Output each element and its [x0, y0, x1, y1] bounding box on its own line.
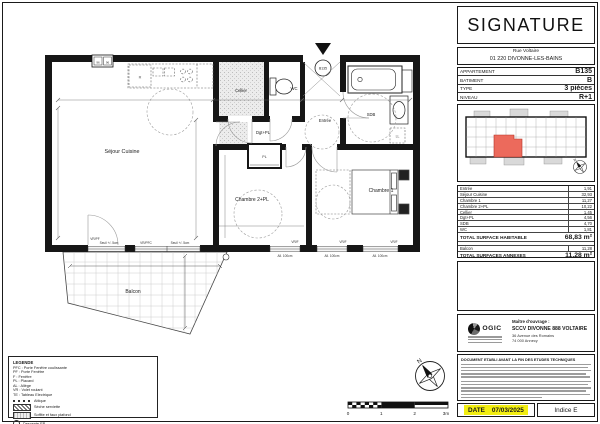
owner-box: OGIC Maître d'ouvrage : SCCV DIVONNE 888…	[457, 314, 595, 352]
room-label-chambre2: Chambre 2+PL	[235, 197, 269, 203]
info-row: BATIMENT B	[458, 76, 594, 84]
annex-total-label: TOTAL SURFACES ANNEXES	[460, 253, 526, 258]
info-value: B135	[575, 68, 592, 75]
descente-ep-symbol	[223, 254, 229, 260]
scale-3m: 3m	[443, 411, 450, 416]
surface-value: 11,28	[568, 246, 594, 251]
ogic-logo-block: OGIC	[462, 318, 508, 348]
disclaimer-text-line	[461, 387, 591, 388]
legend-box: LEGENDE PFC : Porte Fenêtre coulissante …	[8, 356, 158, 418]
svg-text:VR/F: VR/F	[339, 240, 346, 244]
info-value: R+1	[579, 94, 592, 101]
info-value: B	[587, 77, 592, 84]
legend-symbol-row: Descente EP	[13, 420, 153, 424]
washer: LL	[390, 128, 405, 143]
info-label: APPARTEMENT	[460, 69, 495, 74]
dimension-lines	[56, 98, 412, 240]
room-label-entree: Entrée	[319, 118, 332, 123]
svg-text:VR/F: VR/F	[390, 240, 397, 244]
duct-label-right: 96	[106, 61, 110, 65]
surface-label: Dgt+PL	[458, 215, 568, 220]
ogic-logo-text: OGIC	[482, 325, 501, 332]
annex-total-row: TOTAL SURFACES ANNEXES 11,28 m²	[458, 252, 594, 258]
svg-text:VR/PF: VR/PF	[90, 237, 99, 241]
disclaimer-title: DOCUMENT ETABLI AVANT LA FIN DES ETUDES …	[461, 358, 591, 362]
logo-box: SIGNATURE	[457, 6, 595, 44]
apartment-info-table: APPARTEMENT B135 BATIMENT B TYPE 3 pièce…	[457, 67, 595, 101]
date-highlight: DATE 07/03/2025	[464, 405, 528, 415]
disclaimer-text-line	[461, 384, 588, 385]
surface-label: Chambre 1	[458, 198, 568, 203]
svg-text:All. 100cm: All. 100cm	[278, 254, 293, 258]
surface-value: 4,56	[568, 215, 594, 220]
disclaimer-text-line	[461, 373, 586, 374]
attique-symbol-icon	[13, 400, 31, 402]
indice-cell: Indice E	[537, 403, 595, 417]
placard-label: PL	[262, 155, 266, 159]
svg-text:All. 100cm: All. 100cm	[325, 254, 340, 258]
surface-label: Chambre 2+PL	[458, 204, 568, 209]
owner-address-line: 74 000 Annecy	[512, 338, 590, 343]
ogic-fineprint-line	[468, 339, 502, 340]
entry-marker: B135	[303, 43, 340, 96]
legend-symbol-label: Sèche serviette	[34, 405, 60, 409]
ogic-fineprint-line	[468, 342, 502, 343]
room-label-chambre1: Chambre 1	[369, 188, 394, 194]
info-label: TYPE	[460, 86, 472, 91]
annex-total-value: 11,28 m²	[565, 252, 592, 258]
surface-value: 32,93	[568, 192, 594, 197]
plan-sheet: Balcon	[0, 0, 600, 424]
info-row: TYPE 3 pièces	[458, 85, 594, 93]
surface-value: 1,91	[568, 186, 594, 191]
surface-value: 4,70	[568, 221, 594, 226]
disclaimer-text-line	[461, 370, 591, 371]
north-compass-icon: N	[408, 352, 449, 394]
surface-label: Entrée	[458, 186, 568, 191]
address-city: 01 220 DIVONNE-LES-BAINS	[490, 56, 563, 63]
bedroom1-furniture	[316, 170, 409, 214]
legend-title: LEGENDE	[13, 360, 153, 365]
legend-symbol-label: Attique	[34, 399, 46, 403]
svg-text:Seuil +/- 5cm: Seuil +/- 5cm	[100, 241, 119, 245]
title-block: SIGNATURE Rue Voltaire 01 220 DIVONNE-LE…	[457, 6, 595, 417]
downspout-symbol-icon	[13, 420, 20, 424]
scale-2: 2	[413, 411, 416, 416]
toilet	[270, 78, 293, 95]
date-label: DATE	[468, 407, 485, 414]
ogic-fineprint-line	[468, 336, 502, 337]
surface-label: Cellier	[458, 210, 568, 215]
svg-text:VR/F: VR/F	[291, 240, 298, 244]
legend-symbol-row: Attique	[13, 399, 153, 403]
entry-arrow-icon	[315, 43, 331, 55]
owner-heading: Maître d'ouvrage :	[512, 319, 590, 325]
surface-label: SDB	[458, 221, 568, 226]
info-label: BATIMENT	[460, 78, 483, 83]
soffit-symbol-icon	[13, 412, 31, 419]
north-label: N	[416, 358, 423, 365]
room-label-wc: WC	[291, 86, 298, 91]
key-plan-compass-icon: N	[569, 155, 588, 175]
date-value: 07/03/2025	[492, 407, 524, 414]
info-row: NIVEAU R+1	[458, 93, 594, 101]
balcony: Balcon	[60, 250, 230, 336]
surface-value: 1,45	[568, 210, 594, 215]
room-label-dgt: Dgt+PL	[256, 130, 271, 135]
info-value: 3 pièces	[564, 85, 592, 92]
room-label-cellier: Cellier	[235, 88, 247, 93]
surface-label: Séjour Cuisine	[458, 192, 568, 197]
bathtub	[348, 66, 402, 93]
scale-0: 0	[347, 411, 350, 416]
towel-dryer-symbol-icon	[13, 404, 31, 411]
placard: PL	[248, 144, 281, 168]
brand-logo: SIGNATURE	[467, 15, 584, 36]
legend-symbol-label: Soffite et faux plafond	[34, 413, 71, 417]
washer-label: LL	[396, 135, 400, 139]
disclaimer-box: DOCUMENT ETABLI AVANT LA FIN DES ETUDES …	[457, 354, 595, 401]
surface-label: Balcon	[458, 246, 568, 251]
surface-value: 11,27	[568, 198, 594, 203]
owner-name: SCCV DIVONNE 888 VOLTAIRE	[512, 326, 590, 333]
disclaimer-text-line	[461, 364, 591, 365]
date-cell: DATE 07/03/2025	[457, 403, 535, 417]
surface-total-row: TOTAL SURFACE HABITABLE 68,83 m²	[458, 233, 594, 242]
svg-text:All. 100cm: All. 100cm	[373, 254, 388, 258]
disclaimer-text-line	[461, 376, 590, 377]
room-label-sdb: SDB	[367, 112, 376, 117]
surface-value: 1,81	[568, 227, 594, 232]
notes-box	[457, 261, 595, 311]
key-plan-drawing: N	[458, 105, 594, 181]
surface-label: WC	[458, 227, 568, 232]
surface-table: Entrée 1,91 Séjour Cuisine 32,93 Chambre…	[457, 185, 595, 258]
date-indice-row: DATE 07/03/2025 Indice E	[457, 403, 595, 417]
fridge-label: R	[139, 76, 142, 80]
address-box: Rue Voltaire 01 220 DIVONNE-LES-BAINS	[457, 47, 595, 65]
room-label-balcon: Balcon	[125, 289, 141, 295]
legend-item: TE : Tableau Electrique	[13, 393, 153, 397]
surface-value: 10,22	[568, 204, 594, 209]
disclaimer-text-line	[461, 381, 591, 382]
disclaimer-text-line	[461, 390, 586, 391]
info-label: NIVEAU	[460, 95, 477, 100]
disclaimer-text-line	[461, 397, 542, 398]
disclaimer-text-line	[461, 394, 590, 395]
entry-unit-label: B135	[319, 67, 327, 71]
surface-total-label: TOTAL SURFACE HABITABLE	[460, 235, 527, 240]
legend-symbol-row: Sèche serviette	[13, 404, 153, 411]
info-row: APPARTEMENT B135	[458, 68, 594, 76]
scale-1: 1	[380, 411, 383, 416]
svg-text:Seuil +/- 5cm: Seuil +/- 5cm	[171, 241, 190, 245]
disclaimer-text-line	[461, 367, 588, 368]
duct-label-left: 96	[96, 61, 100, 65]
ogic-logo-icon	[468, 323, 480, 335]
scale-bar: 0 1 2 3m	[347, 402, 450, 416]
key-plan-box: N	[457, 104, 595, 182]
room-label-sejour: Séjour Cuisine	[104, 149, 139, 155]
legend-symbol-row: Soffite et faux plafond	[13, 412, 153, 419]
svg-text:VR/PFC: VR/PFC	[140, 241, 152, 245]
surface-total-value: 68,83 m²	[565, 234, 592, 241]
